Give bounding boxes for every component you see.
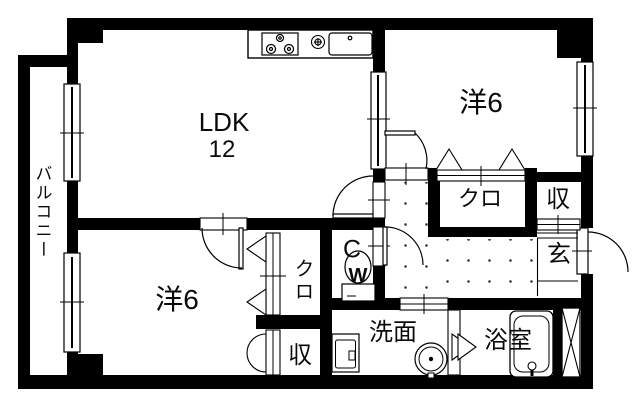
- ldk-size-label: 12: [209, 138, 236, 162]
- folding-door-closet-middle-icon: [247, 233, 286, 315]
- ldk-label: LDK: [199, 109, 250, 135]
- bathroom-label: 浴室: [484, 329, 532, 353]
- balcony-label: バルコニー: [34, 165, 51, 260]
- floorplan: バルコニー LDK 12 洋6 洋6 クロ 収 玄 クロ 収 C W 洗面 浴室: [0, 0, 640, 404]
- entrance-label: 玄: [547, 243, 571, 267]
- window-balcony-bedroom-icon: [60, 253, 84, 352]
- storage-bottom-label: 収: [288, 344, 312, 368]
- bedroom-bottom-label: 洋6: [155, 286, 199, 314]
- window-balcony-ldk-icon: [60, 84, 84, 181]
- double-door-storage-bottom-icon: [247, 330, 280, 375]
- kitchen-sink-icon: [329, 33, 372, 55]
- toilet-label-c: C: [343, 238, 361, 263]
- sliding-door-storage-top-icon: [537, 215, 580, 234]
- washroom-label: 洗面: [369, 321, 417, 345]
- closet-top-label: クロ: [458, 188, 502, 210]
- pipe-shaft-icon: [562, 308, 580, 377]
- closet-middle-label: クロ: [292, 258, 312, 304]
- entrance-door-icon: [572, 228, 628, 274]
- washing-machine-icon: [332, 334, 359, 372]
- floorplan-drawing: [0, 0, 640, 404]
- storage-top-label: 収: [546, 188, 570, 212]
- washbasin-icon: [415, 343, 447, 378]
- window-ldk-hall-icon: [367, 72, 390, 169]
- window-bedroom-top-icon: [573, 62, 597, 156]
- stove-icon: [262, 33, 298, 55]
- kitchen-counter: [248, 30, 373, 58]
- toilet-label-w: W: [349, 266, 368, 286]
- folding-door-bathroom-icon: [448, 310, 476, 375]
- folding-door-closet-top-icon: [436, 149, 525, 186]
- bedroom-top-label: 洋6: [459, 89, 503, 117]
- sliding-door-washroom-icon: [400, 294, 448, 314]
- door-ldk-icon: [333, 176, 373, 218]
- door-openings: [200, 163, 428, 266]
